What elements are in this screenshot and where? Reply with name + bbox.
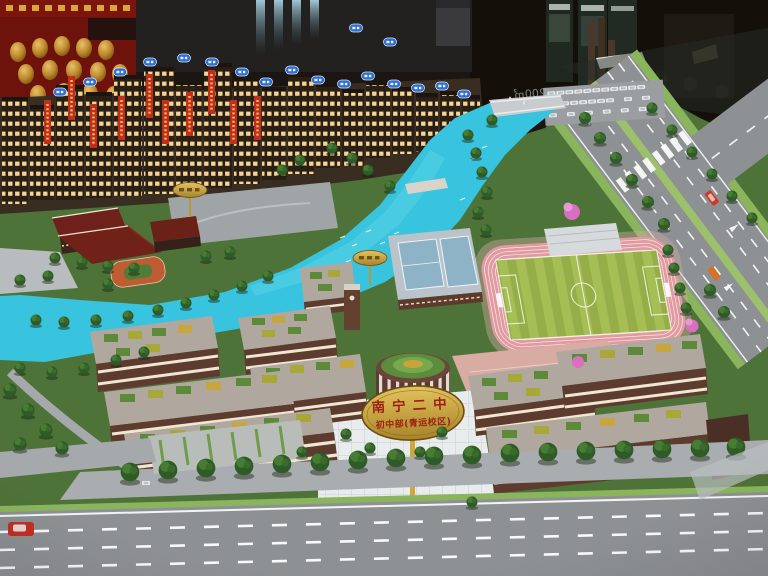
model-photo: 1703-200㎡ — [0, 0, 768, 576]
rooftop-courts-building — [388, 228, 483, 310]
red-car-bottom — [8, 522, 34, 536]
